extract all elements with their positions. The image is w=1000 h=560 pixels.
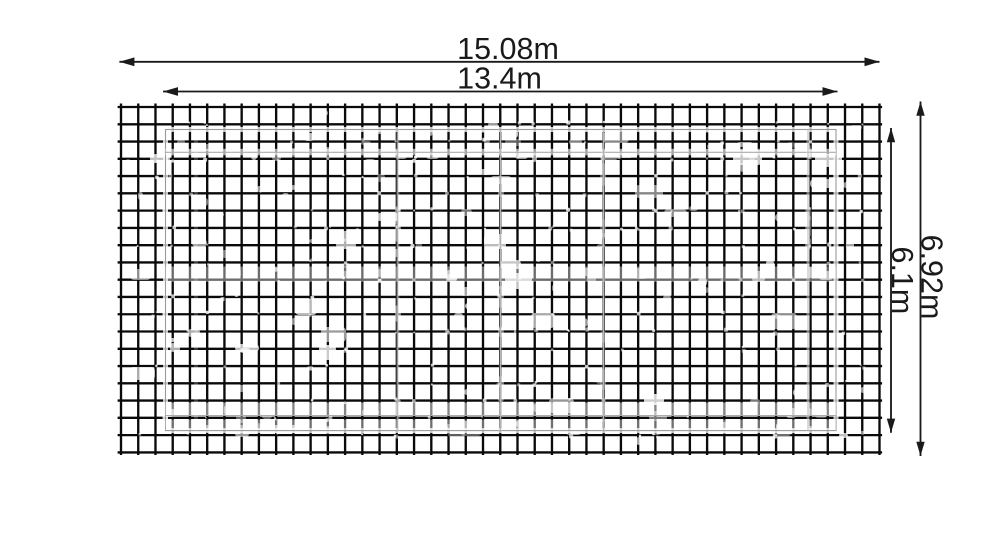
- svg-text:13.4m: 13.4m: [457, 62, 542, 96]
- svg-text:6.1m: 6.1m: [885, 246, 919, 314]
